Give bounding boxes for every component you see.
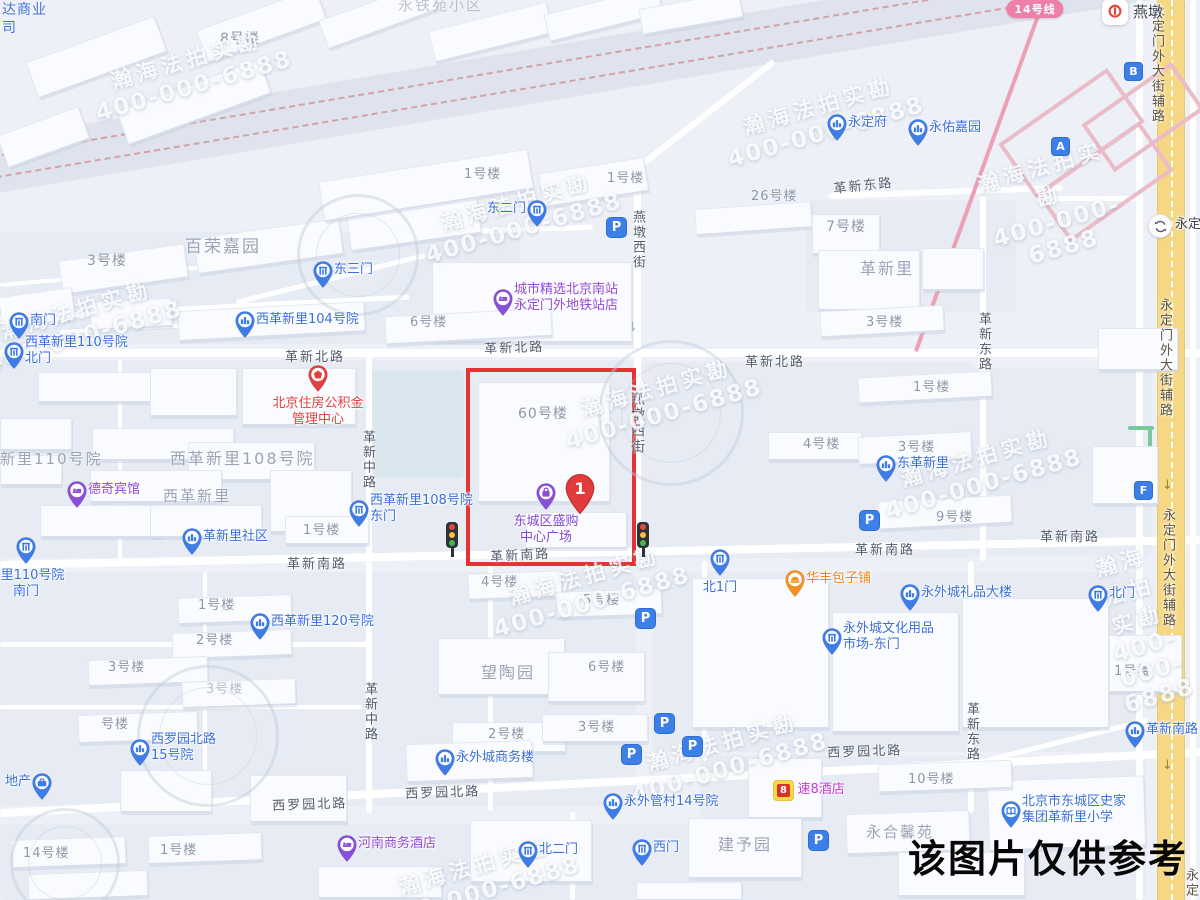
building-block — [694, 201, 813, 236]
svg-text:1: 1 — [574, 479, 585, 498]
building-block — [150, 368, 237, 417]
area-label: 达商业 — [2, 2, 47, 18]
area-label: 5号楼 — [583, 594, 620, 609]
parking-icon[interactable]: P — [808, 830, 829, 851]
building-block — [89, 298, 172, 331]
poi-label-gate-east-108: 西革新里108号院东门 — [370, 493, 473, 525]
map-canvas[interactable]: ↓↓↓↓↓革新北路革新北路革新北路革新南路革新南路革新南路革新南路西罗园北路西罗… — [0, 0, 1200, 900]
area-label: 建予园 — [718, 836, 772, 854]
area-label: 4号楼 — [803, 438, 840, 453]
area-label: 2号楼 — [488, 728, 525, 743]
street-label: 燕墩西街 — [629, 210, 644, 270]
area-label: 6号楼 — [588, 661, 625, 676]
area-label: 3号楼 — [108, 661, 145, 676]
poi-label-yongdingfu: 永定府 — [848, 115, 887, 131]
area-label: 3号楼 — [898, 441, 935, 456]
street-label: 革新南路 — [1040, 531, 1100, 546]
metro-line-badge[interactable]: 14号线 — [1006, 0, 1063, 18]
poi-label-gate-east2: 东二门 — [487, 201, 526, 217]
poi-label-gate-north-110: 西革新里110号院北门 — [25, 335, 128, 367]
area-label: 6号楼 — [410, 316, 447, 331]
poi-label-community-gexinli: 革新里社区 — [203, 529, 268, 545]
road-segment — [0, 705, 362, 709]
building-block — [120, 770, 212, 813]
area-label: 永铁苑小区 — [398, 0, 483, 14]
area-label: 1号楼 — [303, 524, 340, 539]
traffic-light-pole — [642, 547, 645, 557]
park-path — [1128, 426, 1154, 430]
area-label: 9号楼 — [936, 511, 973, 526]
area-label: 2号楼 — [196, 634, 233, 649]
area-label: 新里110号院 — [0, 451, 103, 468]
street-label: 革新南路 — [287, 558, 347, 573]
building-block — [922, 248, 984, 291]
poi-label-yandun-station: 燕墩 — [1133, 4, 1163, 20]
metro-exit-a-icon[interactable]: A — [1051, 137, 1070, 156]
traffic-light-icon — [446, 522, 458, 548]
building-block — [196, 0, 327, 64]
area-label: 10号楼 — [908, 773, 955, 788]
area-label: 3号楼 — [206, 683, 243, 698]
poi-label-gate-north1: 北1门 — [703, 580, 737, 596]
road-segment — [1190, 0, 1196, 900]
building-block — [28, 870, 149, 900]
street-label: 永定门外大街辅路 — [1156, 298, 1171, 418]
poi-label-yard-xiluoyuan-15: 西罗园北路15号院 — [151, 732, 216, 764]
area-label: 百荣嘉园 — [185, 238, 261, 258]
street-label: 革新中路 — [361, 682, 376, 742]
street-label: 燕墩西街 — [629, 391, 645, 455]
area-label: 3号楼 — [578, 721, 615, 736]
metro-exit-f-icon[interactable]: F — [1134, 481, 1153, 500]
area-label: 26号楼 — [751, 190, 798, 205]
area-label: 革新里 — [860, 260, 914, 278]
building-block — [692, 578, 829, 729]
poi-label-gate-north-yongwai: 北门 — [1109, 586, 1135, 602]
parking-icon[interactable]: P — [635, 608, 656, 629]
poi-label-shijia-school: 北京市东城区史家集团革新里小学 — [1022, 794, 1126, 826]
area-label: 7号楼 — [826, 219, 866, 235]
area-label: 1号楼 — [198, 599, 235, 614]
poi-label-gate-market-east: 永外城文化用品市场-东门 — [843, 621, 934, 653]
poi-label-dong-gexinli: 东革新里 — [897, 456, 949, 472]
area-label: 1号楼 — [607, 172, 644, 187]
traffic-light-icon — [637, 522, 649, 548]
poi-label-dichan: 地产 — [5, 774, 31, 790]
poi-label-gate-east3: 东三门 — [334, 262, 373, 278]
area-label: 西革新里108号院 — [170, 450, 315, 468]
parking-icon[interactable]: P — [654, 713, 675, 734]
street-label: 革新南路 — [855, 544, 915, 559]
area-label: 60号楼 — [518, 406, 568, 422]
poi-label-gate-north2: 北二门 — [539, 842, 578, 858]
poi-label-yard-120: 西革新里120号院 — [271, 614, 374, 630]
poi-label-gexin-south-poi: 革新南路 — [1146, 722, 1198, 738]
street-label: 革新北路 — [285, 351, 345, 366]
poi-label-gate-west: 西门 — [653, 840, 679, 856]
disclaimer-text: 该图片仅供参考 — [908, 838, 1188, 882]
green-space — [368, 370, 464, 478]
poi-label-yongyou-jiayuan: 永佑嘉园 — [929, 120, 981, 136]
poi-label-city-select-hotel: 城市精选北京南站永定门外地铁站店 — [514, 282, 618, 314]
poi-label-gongjijin: 北京住房公积金管理中心 — [272, 396, 363, 428]
road-arrow-icon: ↓ — [1162, 758, 1173, 773]
area-label: 1号楼 — [160, 844, 197, 859]
poi-label-yongwai-guancun-14: 永外管村14号院 — [624, 794, 719, 810]
street-label: 革新东路 — [975, 312, 990, 372]
traffic-light-pole — [451, 547, 454, 557]
building-block — [40, 505, 162, 538]
poi-label-yard-104: 西革新里104号院 — [256, 312, 359, 328]
street-label: 永定门外大街辅路 — [1148, 4, 1163, 124]
area-label: 望陶园 — [481, 664, 535, 682]
area-label: 14号楼 — [23, 847, 70, 862]
area-label: 1号楼 — [464, 168, 501, 183]
poi-label-yongwai-business: 永外城商务楼 — [456, 750, 534, 766]
poi-label-gate-south-110: 新里110号院南门 — [0, 568, 64, 600]
street-label: 永定门外大街辅路 — [1159, 508, 1174, 628]
area-label: 1号楼 — [1114, 665, 1151, 680]
building-block — [0, 418, 72, 451]
building-block — [38, 372, 158, 403]
poi-label-deqi-hotel: 德奇宾馆 — [88, 482, 140, 498]
area-label: 3号楼 — [866, 316, 903, 331]
street-label: 西罗园北路 — [272, 797, 347, 815]
parking-icon[interactable]: P — [621, 744, 642, 765]
area-label: 司 — [2, 20, 17, 36]
road-arrow-icon: ↓ — [1162, 478, 1173, 493]
building-block — [25, 16, 167, 100]
street-label: 革新北路 — [745, 356, 805, 371]
poi-label-su8-hotel: 速8酒店 — [798, 782, 845, 798]
street-label: 革新中路 — [359, 430, 374, 490]
poi-label-yongwai-gift: 永外城礼品大楼 — [921, 585, 1012, 601]
street-label: 西罗园北路 — [827, 744, 902, 762]
poi-label-henan-hotel: 河南商务酒店 — [358, 836, 436, 852]
street-label: 西罗园北路 — [405, 785, 480, 803]
building-block — [318, 866, 442, 899]
street-label: 革新北路 — [484, 341, 545, 358]
area-label: 号楼 — [101, 718, 129, 733]
poi-label-gate-south: 南门 — [30, 313, 56, 329]
area-label: 8号楼 — [220, 31, 260, 47]
parking-icon[interactable]: P — [859, 510, 880, 531]
area-label: 3号楼 — [87, 253, 127, 269]
area-label: 西革新里 — [163, 488, 231, 505]
road-segment — [0, 349, 1200, 357]
building-block — [636, 882, 742, 900]
building-block — [962, 598, 1109, 729]
poi-label-shenggou-plaza: 东城区盛购中心广场 — [513, 514, 578, 546]
street-label: 革新东路 — [963, 702, 978, 762]
metro-exit-b-icon[interactable]: B — [1124, 62, 1143, 81]
area-label: 4号楼 — [481, 576, 518, 591]
parking-icon[interactable]: P — [606, 217, 627, 238]
poi-label-interchange: 永定 — [1175, 217, 1200, 233]
parking-icon[interactable]: P — [682, 736, 703, 757]
street-label: 革新南路 — [490, 548, 551, 566]
area-label: 1号楼 — [913, 381, 950, 396]
poi-label-huafeng-baozi: 华丰包子铺 — [806, 571, 871, 587]
